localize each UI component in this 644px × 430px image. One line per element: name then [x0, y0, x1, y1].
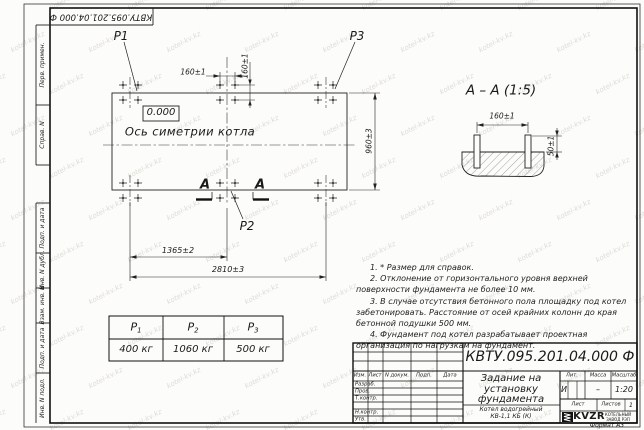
doc-title-line-3: фундамента [478, 395, 544, 405]
doc-title-line-1: Задание на [481, 374, 542, 384]
note-3: 3. В случае отсутствия бетонного пола пл… [356, 296, 641, 330]
mass-label: Масса [590, 373, 607, 378]
load-point-p2-label: P2 [240, 220, 255, 232]
drawing-sheet: kotel-kv.kzkotel-kv.kzkotel-kv.kzkotel-k… [0, 0, 644, 430]
drawing-linework [0, 0, 644, 430]
strip-vzam-inv: Взам. инв. N [40, 286, 46, 325]
dim-width-2810: 2810±3 [212, 266, 244, 274]
dim-section-160: 160±1 [489, 112, 514, 120]
sheets-label: Листов [601, 402, 620, 407]
col-podp: Подп. [416, 373, 432, 378]
scale-label: Масштаб [612, 373, 637, 378]
table-value-p3: 500 кг [236, 345, 270, 355]
corner-designation: КВТУ.095.201.04.000 Ф [50, 12, 153, 21]
col-list: Лист [368, 373, 381, 378]
strip-podp-data-1: Подп. и дата [40, 208, 46, 249]
strip-inv-dubl: Инв. N дубл. [40, 250, 46, 289]
sign-row-tkontr: Т.контр. [355, 396, 377, 401]
sign-row-nkontr: Н.контр. [355, 410, 378, 415]
sign-row-utv: Утв. [355, 417, 366, 422]
title-block-designation: КВТУ.095.201.04.000 Ф [466, 350, 635, 364]
table-header-p2: P2 [187, 322, 198, 335]
kvzr-logo-text: KVZR [573, 412, 605, 422]
product-name-line-2: КВ-1,1 КБ (К) [490, 414, 531, 420]
table-value-p1: 400 кг [119, 345, 153, 355]
dim-bolt-spacing-x: 160±1 [180, 68, 205, 76]
sign-row-razrab: Разраб. [355, 382, 375, 387]
strip-inv-podl: Инв. N подл. [40, 378, 46, 418]
dim-height-960: 960±3 [365, 128, 373, 153]
sign-row-prov: Пров. [355, 389, 370, 394]
table-header-p3: P3 [247, 322, 258, 335]
load-point-p1-label: P1 [114, 30, 129, 42]
table-header-p1: P1 [130, 322, 141, 335]
strip-podp-data-2: Подп. и дата [40, 328, 46, 369]
logo-caption-line-2: ЗАВОД РЭП [606, 418, 630, 422]
format-label: Формат А3 [590, 423, 624, 429]
note-1: 1. * Размер для справок. [356, 262, 641, 273]
symmetry-axis-label: Ось симетрии котла [125, 126, 255, 138]
strip-perv-primen: Перв. примен. [40, 42, 46, 87]
elevation-mark: 0.000 [147, 108, 176, 118]
strip-sprav-n: Справ. N [40, 121, 46, 148]
lit-value: И [561, 386, 567, 394]
lit-label: Лит. [566, 373, 578, 378]
sheets-value: 1 [629, 402, 633, 409]
sheet-label: Лист [571, 402, 584, 407]
note-2: 2. Отклонение от горизонтального уровня … [356, 273, 641, 295]
scale-value: 1:20 [615, 386, 633, 394]
dim-section-50: 50±1 [547, 136, 555, 157]
dim-width-1365: 1365±2 [162, 247, 194, 255]
section-view-title: А – А (1:5) [466, 84, 536, 98]
section-letter-right: А [255, 179, 265, 192]
col-izm: Изм. [354, 373, 366, 378]
col-n-dokum: N докум. [385, 373, 409, 378]
dim-bolt-spacing-y: 160±1 [241, 53, 249, 78]
table-value-p2: 1060 кг [173, 345, 213, 355]
mass-value: – [596, 386, 600, 394]
load-point-p3-label: P3 [350, 30, 365, 42]
section-letter-left: А [200, 179, 210, 192]
col-data: Дата [443, 373, 456, 378]
technical-notes: 1. * Размер для справок. 2. Отклонение о… [356, 262, 641, 352]
